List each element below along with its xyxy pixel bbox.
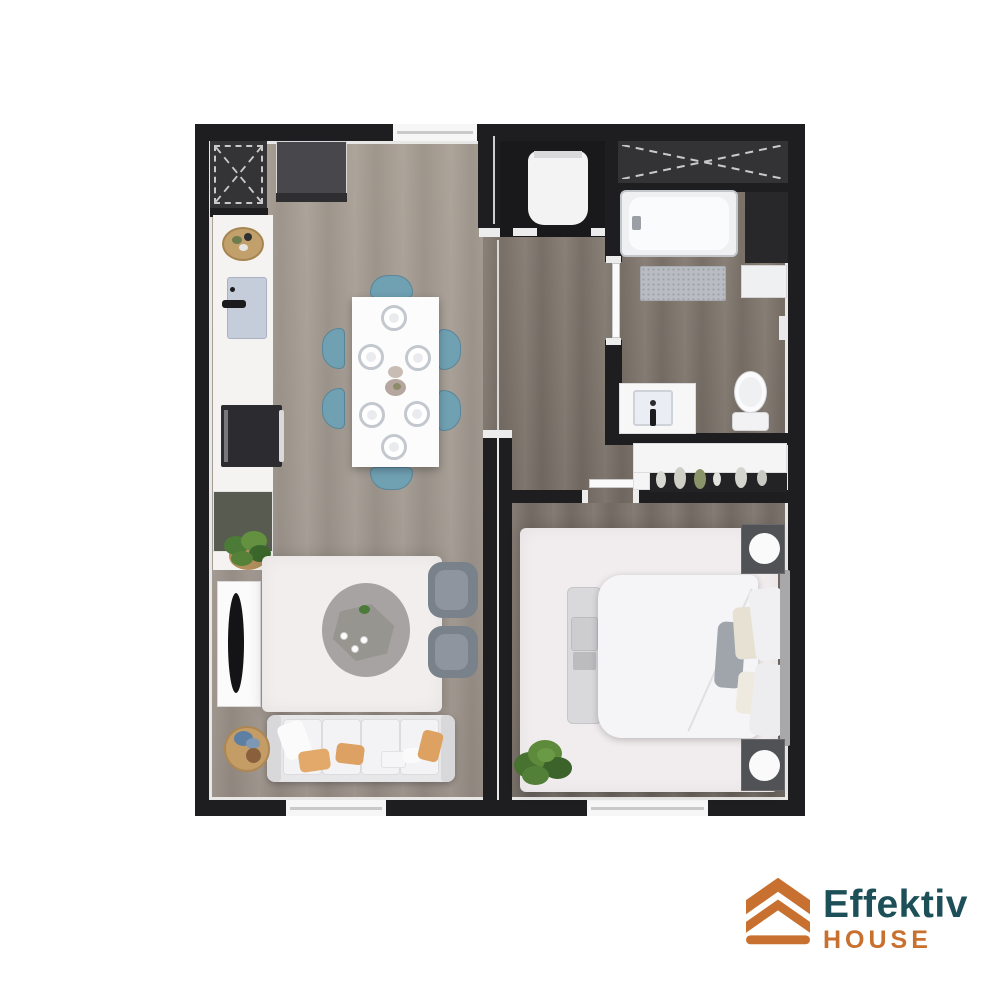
floor-plan xyxy=(0,0,1000,1000)
deco-bowl-item-olive xyxy=(232,236,242,244)
house-stack-icon xyxy=(746,876,810,946)
centerpiece-greens xyxy=(393,383,401,390)
door-jamb-niche-left xyxy=(513,228,537,236)
armchair-2-seat xyxy=(435,634,468,670)
dining-chair-left-2 xyxy=(322,388,345,429)
plant-bedroom-leaf-5 xyxy=(537,748,555,762)
washing-machine xyxy=(528,151,588,225)
figurine-2 xyxy=(674,467,686,489)
bench-box xyxy=(573,652,596,670)
hall-console xyxy=(633,443,787,473)
house-stack-icon-base xyxy=(746,935,810,944)
wall-central-lower-right xyxy=(499,437,512,803)
bath-stool xyxy=(741,265,787,298)
wall-central-upper-seam xyxy=(493,136,495,224)
door-jamb-bath-bottom xyxy=(606,338,621,345)
bathtub-faucet xyxy=(632,216,641,230)
toilet-tank xyxy=(732,412,769,431)
window-top-glass xyxy=(397,131,473,134)
wall-left xyxy=(195,124,209,816)
closet-kitchen-x-mark xyxy=(214,145,263,204)
plate-6-center xyxy=(389,442,399,452)
vanity-tap xyxy=(650,409,656,426)
plant-bedroom-leaf-4 xyxy=(522,766,549,785)
door-jamb-bedroom-left xyxy=(582,490,588,503)
window-living-south-glass xyxy=(290,807,382,810)
oven-handle xyxy=(279,410,284,462)
plate-1-center xyxy=(389,313,399,323)
headboard xyxy=(780,570,790,746)
fridge-cabinet xyxy=(276,141,347,198)
sofa-pillow-orange-1 xyxy=(298,748,332,773)
towel-holder xyxy=(779,316,787,340)
plate-4-center xyxy=(367,410,377,420)
door-jamb-bath-top xyxy=(606,256,621,263)
figurine-5 xyxy=(735,467,747,488)
plate-2-center xyxy=(366,352,376,362)
armchair-1-seat xyxy=(435,570,468,610)
wall-central-lower-left xyxy=(483,437,497,800)
wardrobe-bathroom-x-mark xyxy=(622,145,784,179)
washing-machine-panel xyxy=(534,151,582,158)
toilet-seat xyxy=(739,377,762,407)
wall-bedroom-north-left xyxy=(512,490,587,503)
dining-chair-left-1 xyxy=(322,328,345,369)
oven-controls xyxy=(224,410,228,462)
door-jamb-central-lower xyxy=(483,430,512,438)
bath-mat xyxy=(640,266,726,301)
figurine-3 xyxy=(694,469,706,489)
cabinet-bathroom-dark xyxy=(745,192,788,263)
deco-bowl-item-white xyxy=(239,244,248,251)
plant-kitchen-leaf-4 xyxy=(231,551,253,566)
lamp-top xyxy=(749,533,780,564)
candle-1 xyxy=(340,632,348,640)
sink-faucet xyxy=(222,300,246,308)
vanity-drain xyxy=(650,400,656,406)
plate-3-center xyxy=(413,353,423,363)
lamp-bottom xyxy=(749,750,780,781)
door-jamb-bedroom-right xyxy=(633,490,639,503)
figurine-6 xyxy=(757,470,767,486)
side-table-cup xyxy=(246,748,261,763)
centerpiece-flower-1 xyxy=(388,366,403,378)
logo-sub: HOUSE xyxy=(823,928,968,953)
coffee-table-plant xyxy=(359,605,370,614)
door-leaf-bedroom xyxy=(589,479,635,488)
plate-5-center xyxy=(412,409,422,419)
door-leaf-bathroom xyxy=(612,263,620,338)
fridge-cabinet-shadow xyxy=(276,193,347,202)
candle-2 xyxy=(360,636,368,644)
figurine-1 xyxy=(656,471,666,488)
bathtub-inner xyxy=(629,197,729,250)
sofa-arm-right xyxy=(441,715,455,782)
sofa-pillow-orange-2 xyxy=(335,742,365,765)
deco-bowl-item-dark xyxy=(244,233,252,241)
logo-text: Effektiv HOUSE xyxy=(823,885,968,953)
logo-brand: Effektiv xyxy=(823,885,968,924)
dash-line-hallway xyxy=(497,240,499,430)
oven xyxy=(221,405,282,467)
figurine-4 xyxy=(713,472,721,486)
baseboard-left xyxy=(209,141,212,801)
wall-right xyxy=(788,124,805,816)
logo: Effektiv HOUSE xyxy=(746,876,968,953)
window-bedroom-south-glass xyxy=(591,807,704,810)
sink-soap xyxy=(230,287,235,292)
tv xyxy=(228,593,244,693)
dining-chair-top xyxy=(370,275,413,298)
candle-3 xyxy=(351,645,359,653)
bench-tray xyxy=(571,617,598,651)
